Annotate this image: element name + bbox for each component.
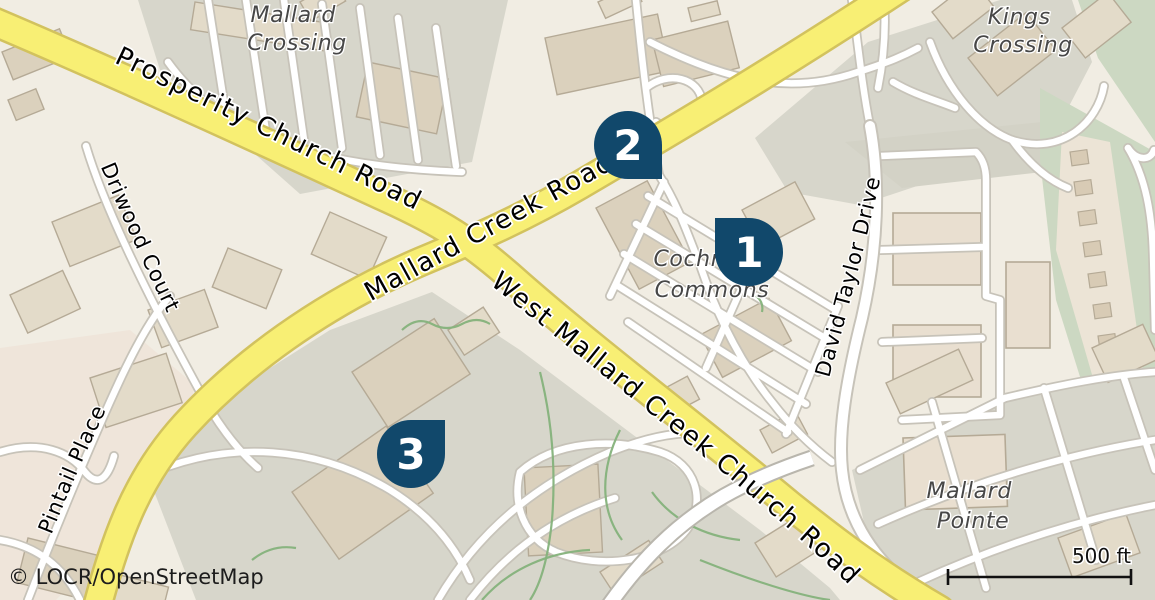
map-marker-3[interactable]: 3	[377, 420, 445, 488]
map-base-layer: Prosperity Church Road Mallard Creek Roa…	[0, 0, 1155, 600]
map-marker-2[interactable]: 2	[594, 111, 662, 179]
map-canvas[interactable]: Prosperity Church Road Mallard Creek Roa…	[0, 0, 1155, 600]
marker-number: 3	[396, 430, 425, 479]
marker-number: 1	[734, 228, 763, 277]
map-marker-1[interactable]: 1	[715, 218, 783, 286]
scale-bar-label: 500 ft	[1072, 544, 1131, 568]
map-attribution: © LOCR/OpenStreetMap	[8, 565, 264, 589]
marker-number: 2	[613, 121, 642, 170]
